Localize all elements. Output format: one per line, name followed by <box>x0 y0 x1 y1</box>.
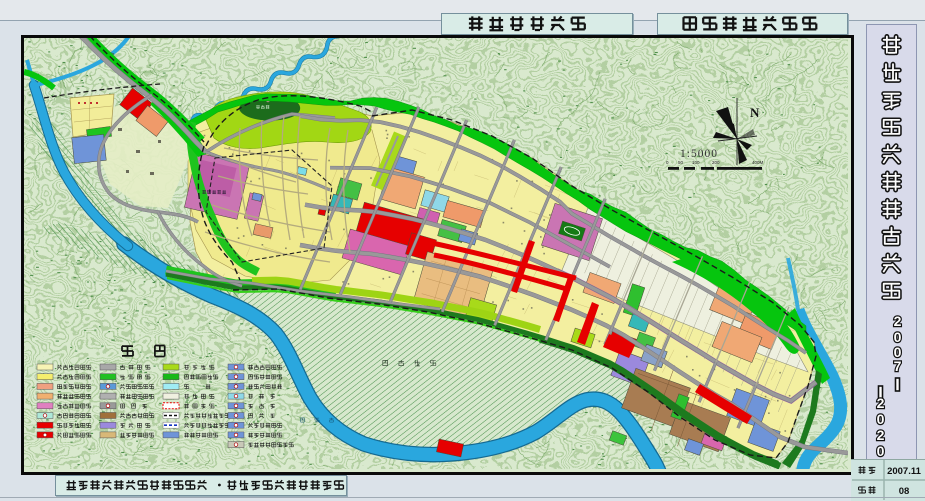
svg-text:50: 50 <box>678 160 684 165</box>
svg-text:100: 100 <box>692 160 700 165</box>
svg-text:2007.11: 2007.11 <box>887 466 922 477</box>
svg-text:1:5000: 1:5000 <box>680 148 718 160</box>
svg-text:N: N <box>750 105 760 120</box>
svg-text:400M: 400M <box>752 160 764 165</box>
svg-text:200: 200 <box>712 160 720 165</box>
svg-text:08: 08 <box>899 486 910 497</box>
